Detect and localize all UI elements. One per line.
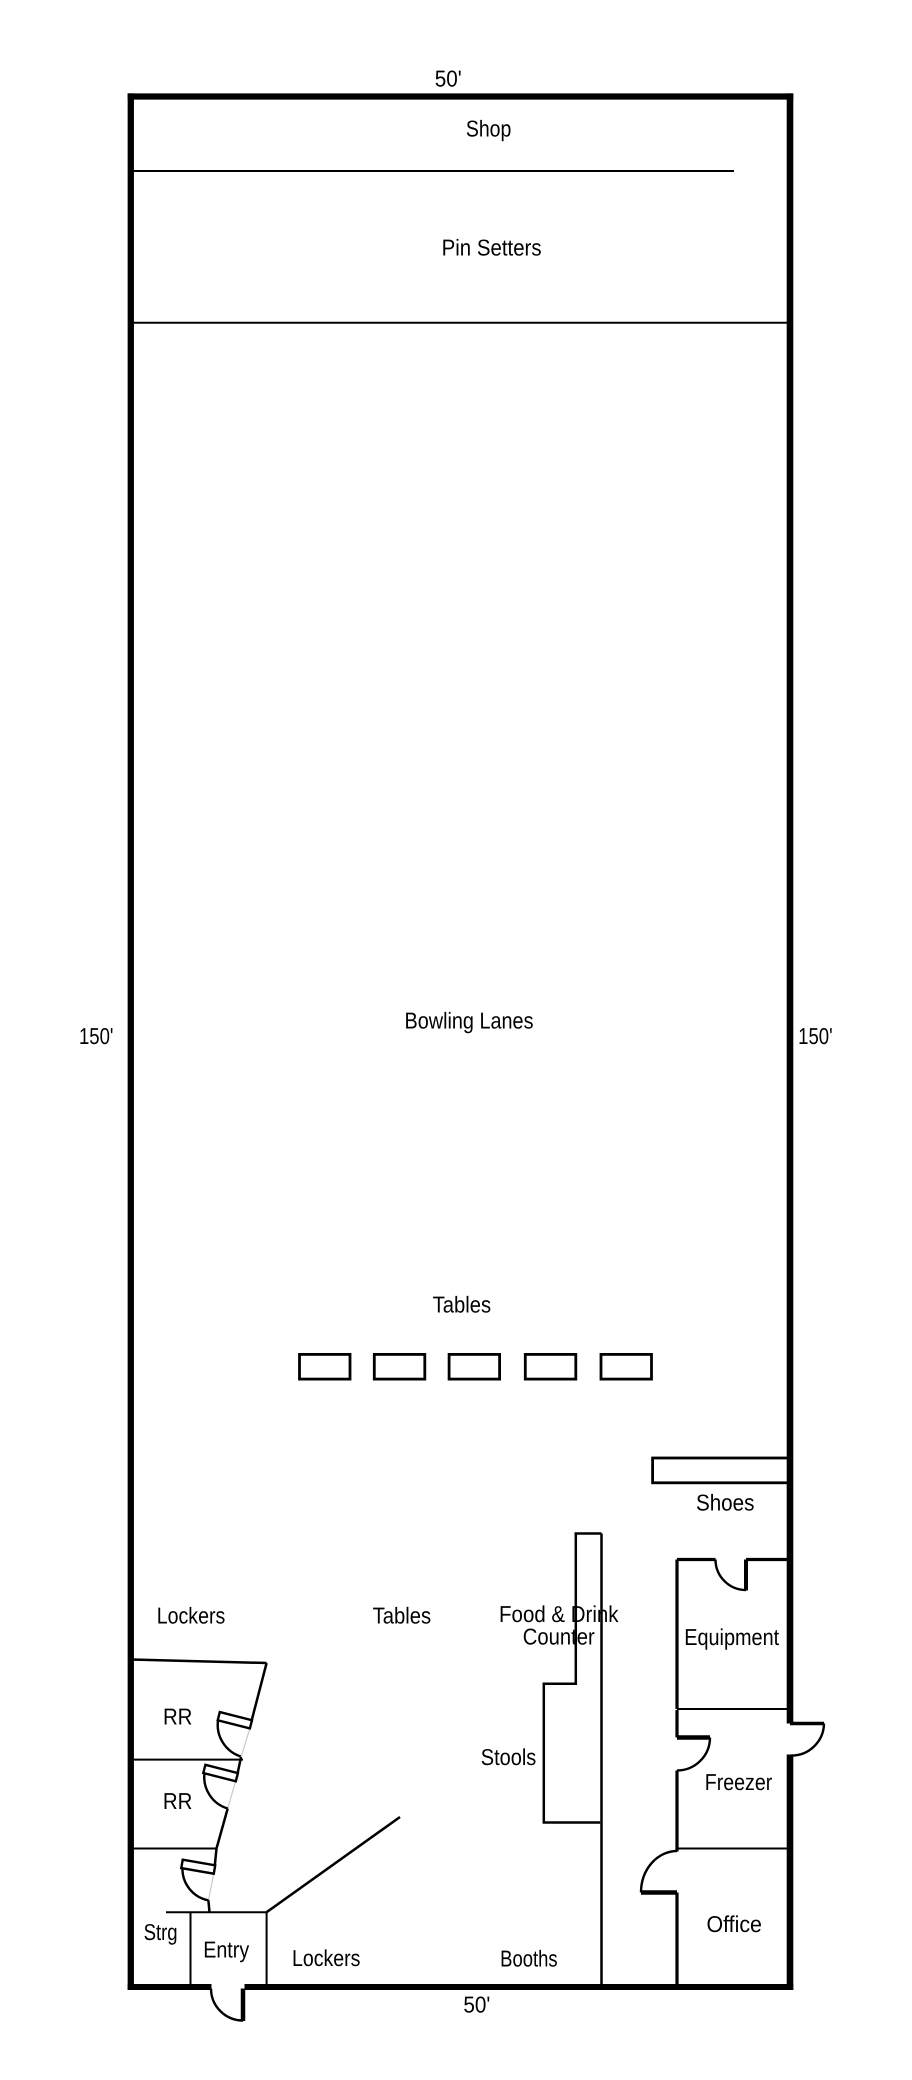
svg-text:50': 50' [463, 1992, 490, 2018]
svg-text:Lockers: Lockers [292, 1945, 361, 1971]
svg-text:Strg: Strg [144, 1919, 178, 1945]
svg-text:RR: RR [163, 1704, 193, 1730]
svg-text:Tables: Tables [373, 1603, 432, 1629]
svg-text:150': 150' [798, 1023, 833, 1049]
svg-text:Tables: Tables [433, 1292, 492, 1318]
svg-text:Pin Setters: Pin Setters [442, 235, 542, 261]
svg-text:150': 150' [79, 1023, 114, 1049]
svg-text:Office: Office [706, 1911, 762, 1937]
svg-text:Bowling Lanes: Bowling Lanes [405, 1008, 534, 1034]
svg-text:Freezer: Freezer [705, 1769, 773, 1795]
svg-text:Counter: Counter [523, 1624, 595, 1650]
svg-text:50': 50' [435, 66, 462, 92]
svg-text:Equipment: Equipment [684, 1624, 780, 1650]
svg-text:Booths: Booths [500, 1946, 558, 1972]
svg-text:Stools: Stools [481, 1744, 537, 1770]
svg-text:Shoes: Shoes [696, 1490, 755, 1516]
svg-text:RR: RR [163, 1788, 193, 1814]
svg-text:Lockers: Lockers [157, 1603, 226, 1629]
svg-text:Entry: Entry [203, 1937, 249, 1963]
svg-text:Shop: Shop [466, 116, 512, 142]
